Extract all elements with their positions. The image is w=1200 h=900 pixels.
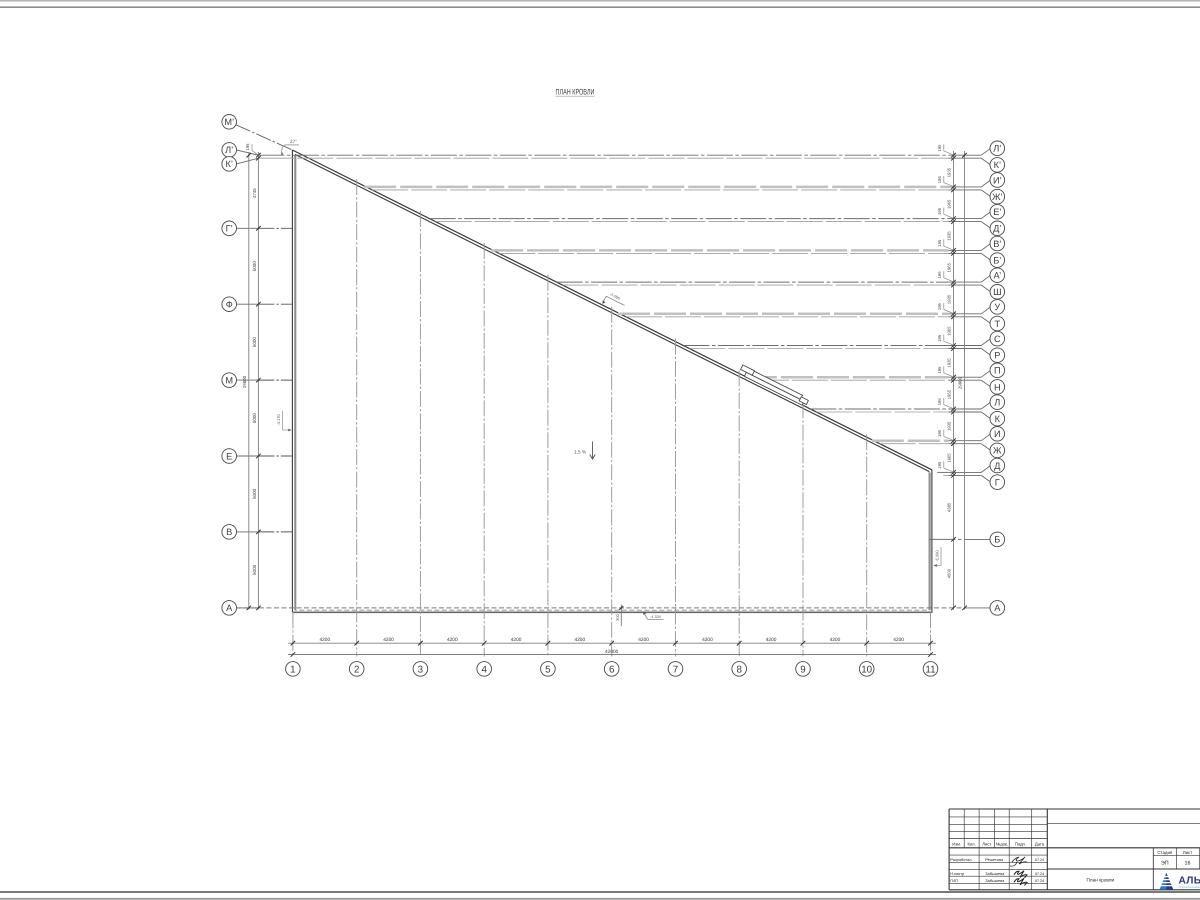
svg-text:1935: 1935 xyxy=(946,358,951,368)
svg-text:Л’: Л’ xyxy=(993,144,1001,154)
svg-text:1965: 1965 xyxy=(946,326,951,336)
svg-text:№док.: №док. xyxy=(996,841,1008,846)
svg-text:Б: Б xyxy=(994,535,1000,545)
svg-text:Стадия: Стадия xyxy=(1157,850,1173,855)
svg-text:10: 10 xyxy=(861,664,872,675)
svg-text:1965: 1965 xyxy=(946,389,951,399)
svg-text:-5.090: -5.090 xyxy=(609,291,622,301)
svg-text:195: 195 xyxy=(937,334,942,342)
svg-text:195: 195 xyxy=(937,239,942,247)
svg-text:М: М xyxy=(225,375,233,385)
svg-text:ЭП: ЭП xyxy=(1161,860,1169,866)
svg-text:1965: 1965 xyxy=(946,453,951,463)
svg-text:16: 16 xyxy=(1185,860,1191,866)
svg-text:29800: 29800 xyxy=(242,375,247,388)
svg-text:5000: 5000 xyxy=(252,337,257,348)
svg-text:4500: 4500 xyxy=(946,568,951,578)
svg-text:07.24: 07.24 xyxy=(1035,872,1044,876)
svg-text:Т: Т xyxy=(994,319,1000,329)
svg-text:29800: 29800 xyxy=(957,376,962,389)
svg-text:К’: К’ xyxy=(994,160,1001,170)
svg-text:1965: 1965 xyxy=(946,262,951,272)
svg-text:У: У xyxy=(994,302,1000,312)
svg-text:4200: 4200 xyxy=(574,637,585,643)
svg-text:А: А xyxy=(994,603,1001,613)
svg-text:Изм.: Изм. xyxy=(952,841,961,846)
svg-text:В: В xyxy=(226,527,232,537)
svg-text:300: 300 xyxy=(615,613,620,620)
svg-text:Г’: Г’ xyxy=(226,224,233,234)
svg-text:4200: 4200 xyxy=(319,637,330,643)
svg-text:Р: Р xyxy=(994,351,1000,361)
svg-text:9: 9 xyxy=(800,664,805,675)
svg-text:195: 195 xyxy=(245,143,250,151)
svg-text:Н: Н xyxy=(994,382,1001,392)
svg-text:Н.контр: Н.контр xyxy=(950,871,964,876)
svg-text:195: 195 xyxy=(937,144,942,152)
svg-text:4200: 4200 xyxy=(702,637,713,643)
svg-text:42000: 42000 xyxy=(605,649,619,655)
svg-text:-4.170: -4.170 xyxy=(276,414,281,426)
svg-text:1935: 1935 xyxy=(946,421,951,431)
svg-text:Д: Д xyxy=(994,461,1001,471)
svg-text:1935: 1935 xyxy=(946,231,951,241)
svg-text:Л’: Л’ xyxy=(225,145,233,155)
svg-text:1: 1 xyxy=(290,664,295,675)
svg-text:8: 8 xyxy=(736,664,742,675)
svg-text:27°: 27° xyxy=(290,139,297,144)
svg-text:Разработал: Разработал xyxy=(950,857,971,862)
svg-text:195: 195 xyxy=(937,398,942,406)
svg-text:1,5 %: 1,5 % xyxy=(574,450,587,456)
svg-text:Забышева: Забышева xyxy=(985,878,1005,883)
svg-text:195: 195 xyxy=(937,271,942,279)
svg-text:1965: 1965 xyxy=(946,199,951,209)
svg-text:3: 3 xyxy=(418,664,424,675)
svg-text:195: 195 xyxy=(937,207,942,215)
svg-text:7: 7 xyxy=(673,664,678,675)
svg-text:4745: 4745 xyxy=(252,188,257,198)
svg-text:195: 195 xyxy=(937,302,942,310)
svg-text:М’: М’ xyxy=(224,117,234,127)
svg-text:К: К xyxy=(995,414,1001,424)
svg-text:П: П xyxy=(994,366,1001,376)
svg-text:И’: И’ xyxy=(993,175,1002,185)
svg-text:Лист: Лист xyxy=(982,841,991,846)
svg-text:195: 195 xyxy=(937,176,942,184)
svg-text:А: А xyxy=(226,603,233,613)
svg-text:-5.090: -5.090 xyxy=(935,550,940,562)
svg-text:Решетова: Решетова xyxy=(985,857,1004,862)
svg-text:6: 6 xyxy=(609,664,615,675)
svg-text:5000: 5000 xyxy=(252,413,257,424)
svg-text:План кровли: План кровли xyxy=(1086,877,1114,882)
svg-text:11: 11 xyxy=(925,664,935,675)
svg-text:Ж’: Ж’ xyxy=(992,192,1003,202)
svg-text:Г: Г xyxy=(995,477,1000,487)
svg-text:Е: Е xyxy=(226,451,232,461)
svg-text:4: 4 xyxy=(481,664,487,675)
svg-text:195: 195 xyxy=(937,461,942,469)
svg-text:А’: А’ xyxy=(993,271,1001,281)
svg-text:4200: 4200 xyxy=(383,637,394,643)
svg-text:Забышева: Забышева xyxy=(985,871,1005,876)
svg-text:4200: 4200 xyxy=(511,637,522,643)
svg-text:5000: 5000 xyxy=(252,564,257,575)
svg-text:Дата: Дата xyxy=(1035,841,1045,846)
svg-text:строительная компания: строительная компания xyxy=(1179,885,1200,889)
svg-text:И: И xyxy=(994,429,1001,439)
svg-text:Подп.: Подп. xyxy=(1015,841,1026,846)
svg-text:Д’: Д’ xyxy=(993,224,1001,234)
svg-text:5000: 5000 xyxy=(252,488,257,499)
svg-text:4200: 4200 xyxy=(638,637,649,643)
svg-text:2: 2 xyxy=(354,664,359,675)
svg-text:Е’: Е’ xyxy=(993,207,1001,217)
svg-text:07.24: 07.24 xyxy=(1035,858,1044,862)
svg-text:4200: 4200 xyxy=(766,637,777,643)
svg-text:Ш: Ш xyxy=(993,287,1001,297)
svg-text:1935: 1935 xyxy=(946,294,951,304)
svg-text:Лист: Лист xyxy=(1183,850,1193,855)
svg-text:-4.334: -4.334 xyxy=(650,615,661,619)
svg-text:Кол.: Кол. xyxy=(967,841,975,846)
svg-text:ГИП: ГИП xyxy=(950,878,958,883)
svg-text:Л: Л xyxy=(994,397,1000,407)
svg-text:С: С xyxy=(994,334,1001,344)
svg-text:195: 195 xyxy=(937,366,942,374)
svg-text:4200: 4200 xyxy=(447,637,458,643)
svg-text:В’: В’ xyxy=(993,239,1001,249)
svg-text:07.24: 07.24 xyxy=(1035,879,1044,883)
svg-text:4200: 4200 xyxy=(893,637,904,643)
svg-text:195: 195 xyxy=(937,429,942,437)
svg-text:К’: К’ xyxy=(225,159,232,169)
svg-text:4385: 4385 xyxy=(946,502,951,512)
svg-text:Б’: Б’ xyxy=(993,255,1001,265)
svg-text:5000: 5000 xyxy=(252,261,257,272)
svg-text:5: 5 xyxy=(545,664,551,675)
svg-text:4200: 4200 xyxy=(830,637,841,643)
svg-text:Ж: Ж xyxy=(993,446,1002,456)
svg-text:1935: 1935 xyxy=(946,167,951,177)
svg-text:Ф: Ф xyxy=(226,300,233,310)
svg-text:ПЛАН КРОВЛИ: ПЛАН КРОВЛИ xyxy=(556,87,595,96)
